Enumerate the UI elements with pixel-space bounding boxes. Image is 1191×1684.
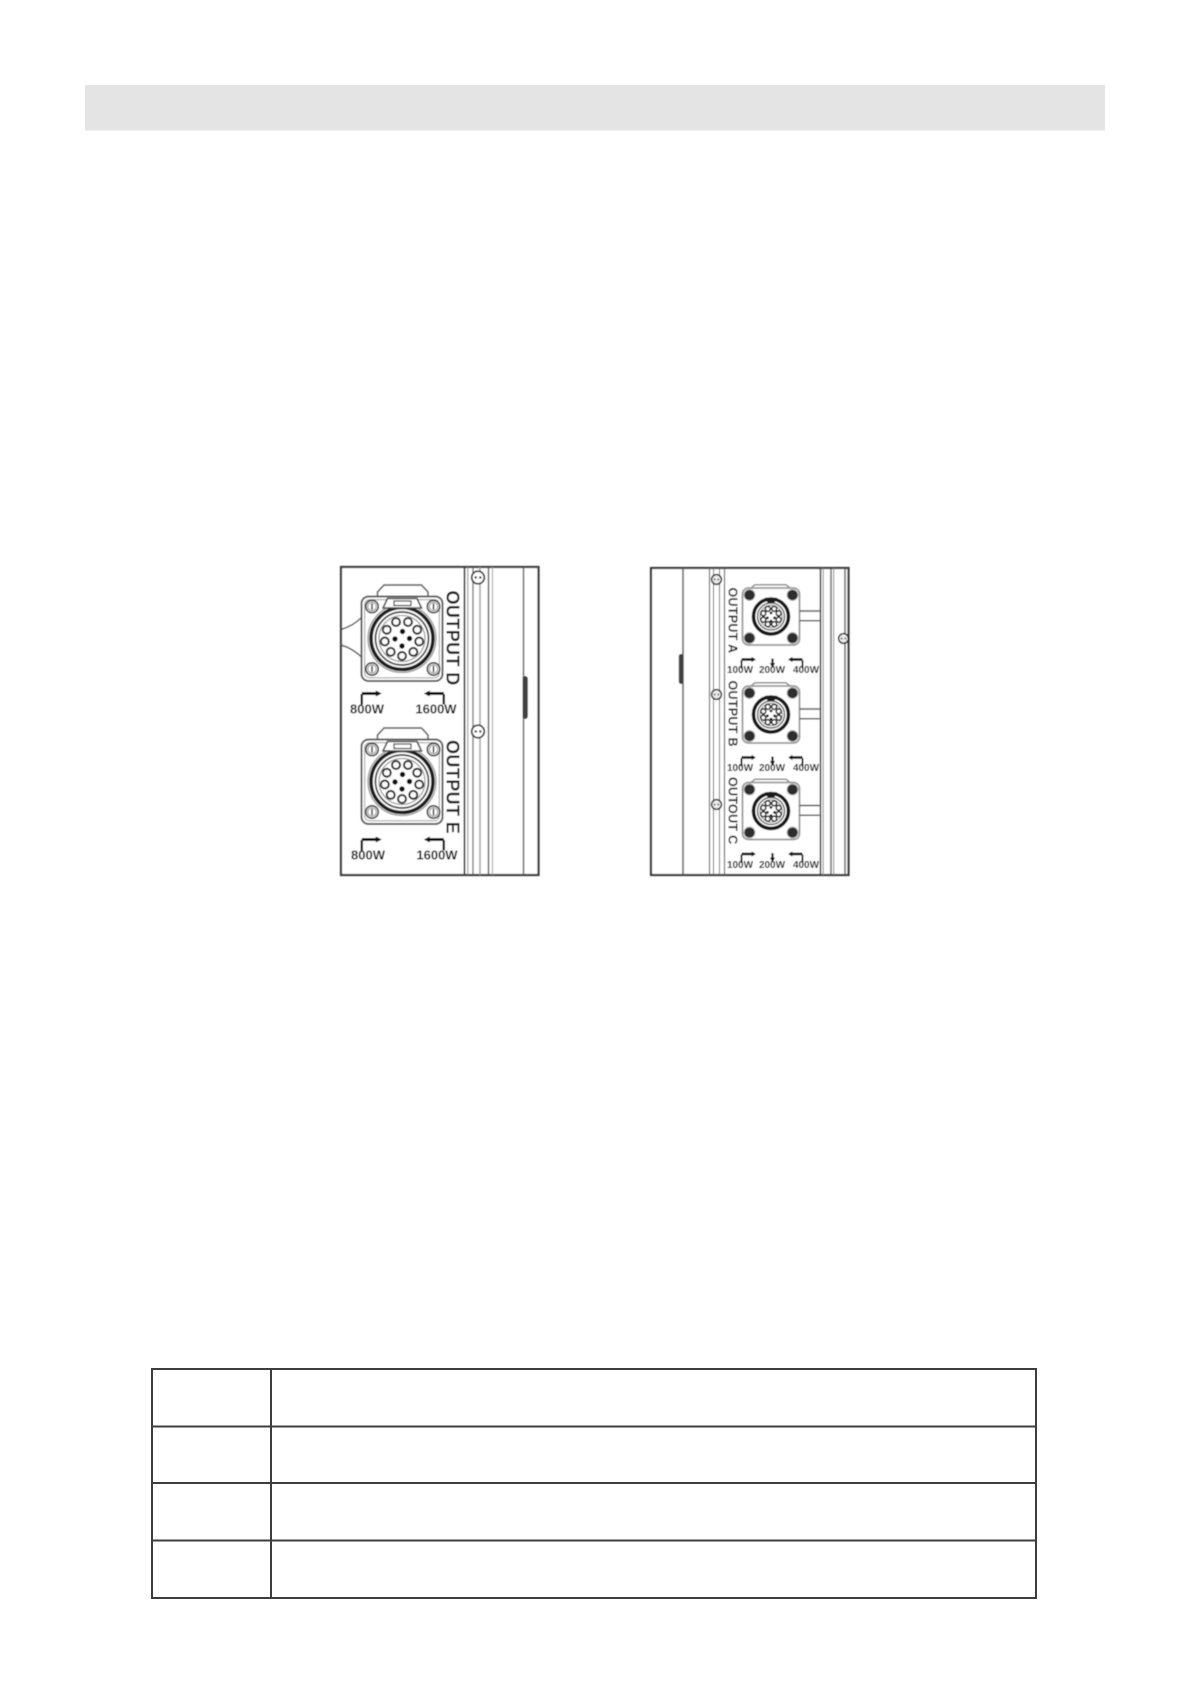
svg-text:400W: 400W xyxy=(793,763,820,774)
svg-text:100W: 100W xyxy=(727,860,754,871)
svg-text:1600W: 1600W xyxy=(415,702,457,717)
svg-text:OUTPUT E: OUTPUT E xyxy=(443,740,463,834)
svg-text:100W: 100W xyxy=(727,763,754,774)
svg-text:1600W: 1600W xyxy=(416,848,458,863)
svg-text:200W: 200W xyxy=(759,763,786,774)
svg-text:OUTOUT C: OUTOUT C xyxy=(726,777,740,844)
svg-text:OUTPUT D: OUTPUT D xyxy=(443,591,463,686)
svg-text:100W: 100W xyxy=(727,665,754,676)
svg-text:200W: 200W xyxy=(759,860,786,871)
svg-text:400W: 400W xyxy=(793,665,820,676)
svg-text:OUTPUT B: OUTPUT B xyxy=(726,681,740,747)
svg-text:800W: 800W xyxy=(350,702,385,717)
svg-text:OUTPUT A: OUTPUT A xyxy=(726,588,740,654)
svg-text:800W: 800W xyxy=(351,848,386,863)
svg-text:200W: 200W xyxy=(759,665,786,676)
svg-text:400W: 400W xyxy=(793,860,820,871)
